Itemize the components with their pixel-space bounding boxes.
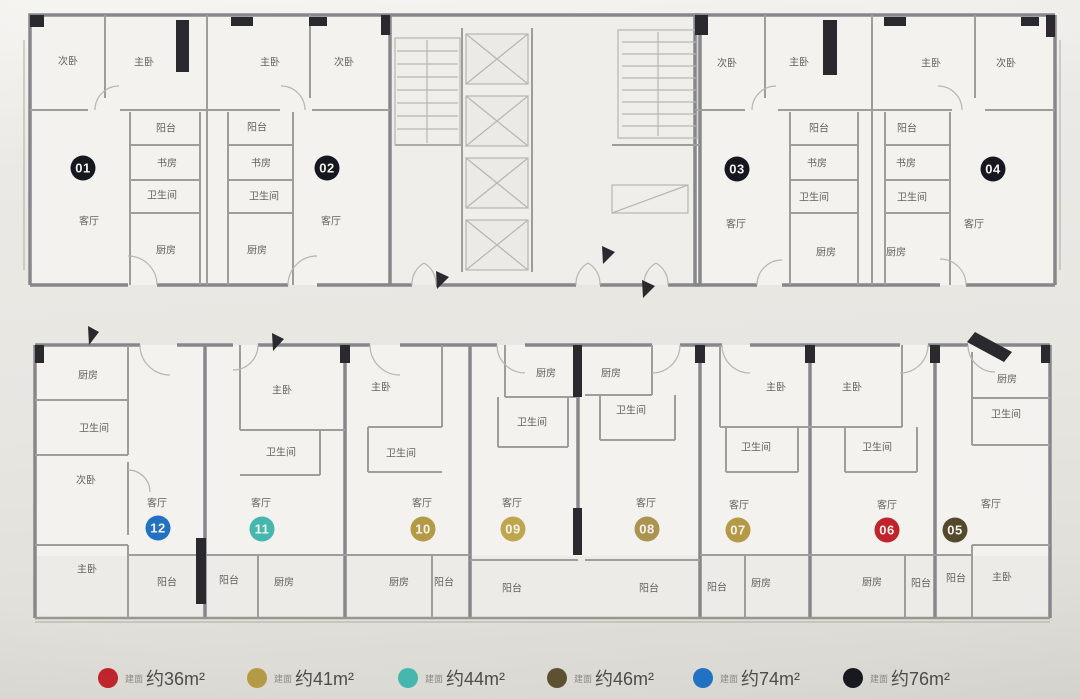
room-label: 客厅 xyxy=(251,495,271,510)
legend-color-dot-icon xyxy=(247,668,267,688)
room-label: 厨房 xyxy=(601,365,621,380)
room-label: 卫生间 xyxy=(616,402,646,417)
room-label: 客厅 xyxy=(321,213,341,228)
room-label: 厨房 xyxy=(751,575,771,590)
room-label: 主卧 xyxy=(789,54,809,69)
legend-area-label: 约36m² xyxy=(146,665,205,691)
legend-color-dot-icon xyxy=(547,668,567,688)
room-label: 卫生间 xyxy=(79,420,109,435)
legend-area-label: 约76m² xyxy=(891,665,950,691)
legend-prefix: 建面 xyxy=(425,672,443,685)
room-label: 客厅 xyxy=(964,216,984,231)
unit-badge-01: 01 xyxy=(71,156,96,181)
room-label: 客厅 xyxy=(981,496,1001,511)
room-label: 厨房 xyxy=(274,574,294,589)
room-label: 卫生间 xyxy=(862,439,892,454)
unit-badge-02: 02 xyxy=(315,156,340,181)
room-label: 阳台 xyxy=(639,580,659,595)
room-label: 客厅 xyxy=(729,497,749,512)
room-label: 厨房 xyxy=(389,574,409,589)
room-label: 厨房 xyxy=(536,365,556,380)
room-label: 厨房 xyxy=(816,244,836,259)
unit-badge-03: 03 xyxy=(725,157,750,182)
room-label: 卫生间 xyxy=(147,187,177,202)
unit-badge-11: 11 xyxy=(250,517,275,542)
room-label: 次卧 xyxy=(76,472,96,487)
room-label: 次卧 xyxy=(58,53,78,68)
room-label: 客厅 xyxy=(636,495,656,510)
legend-prefix: 建面 xyxy=(720,672,738,685)
legend-item: 建面约41m² xyxy=(247,665,354,691)
room-label: 阳台 xyxy=(946,570,966,585)
legend-color-dot-icon xyxy=(398,668,418,688)
legend-item: 建面约74m² xyxy=(693,665,800,691)
block-core xyxy=(390,15,700,285)
room-label: 书房 xyxy=(896,155,916,170)
legend-item: 建面约46m² xyxy=(547,665,654,691)
floorplan-photo: 次卧主卧阳台书房卫生间客厅厨房主卧次卧阳台书房卫生间客厅厨房次卧主卧阳台书房卫生… xyxy=(0,0,1080,699)
room-label: 书房 xyxy=(807,155,827,170)
room-label: 次卧 xyxy=(717,55,737,70)
room-label: 厨房 xyxy=(862,574,882,589)
legend-prefix: 建面 xyxy=(125,672,143,685)
legend-item: 建面约44m² xyxy=(398,665,505,691)
room-label: 阳台 xyxy=(219,572,239,587)
room-label: 卫生间 xyxy=(386,445,416,460)
unit-badge-10: 10 xyxy=(411,517,436,542)
room-label: 卫生间 xyxy=(266,444,296,459)
room-label: 书房 xyxy=(251,155,271,170)
balcony-strip xyxy=(35,556,1050,618)
room-label: 主卧 xyxy=(77,561,97,576)
legend-prefix: 建面 xyxy=(274,672,292,685)
room-label: 厨房 xyxy=(156,242,176,257)
room-label: 阳台 xyxy=(434,574,454,589)
room-label: 客厅 xyxy=(147,495,167,510)
room-label: 卫生间 xyxy=(249,188,279,203)
room-label: 卫生间 xyxy=(517,414,547,429)
legend-area-label: 约46m² xyxy=(595,665,654,691)
unit-badge-06: 06 xyxy=(875,518,900,543)
room-label: 主卧 xyxy=(371,379,391,394)
room-label: 阳台 xyxy=(247,119,267,134)
legend-color-dot-icon xyxy=(693,668,713,688)
room-label: 阳台 xyxy=(502,580,522,595)
room-label: 次卧 xyxy=(334,54,354,69)
legend-color-dot-icon xyxy=(843,668,863,688)
unit-badge-05: 05 xyxy=(943,518,968,543)
room-label: 主卧 xyxy=(260,54,280,69)
floorplan-drawing xyxy=(0,0,1080,699)
room-label: 阳台 xyxy=(911,575,931,590)
room-label: 阳台 xyxy=(156,120,176,135)
unit-badge-09: 09 xyxy=(501,517,526,542)
room-label: 客厅 xyxy=(726,216,746,231)
legend-item: 建面约76m² xyxy=(843,665,950,691)
room-label: 主卧 xyxy=(992,569,1012,584)
room-label: 次卧 xyxy=(996,55,1016,70)
room-label: 主卧 xyxy=(842,379,862,394)
room-label: 客厅 xyxy=(79,213,99,228)
room-label: 书房 xyxy=(157,155,177,170)
room-label: 主卧 xyxy=(921,55,941,70)
room-label: 卫生间 xyxy=(741,439,771,454)
legend-area-label: 约41m² xyxy=(295,665,354,691)
room-label: 主卧 xyxy=(272,382,292,397)
room-label: 主卧 xyxy=(766,379,786,394)
room-label: 厨房 xyxy=(78,367,98,382)
room-label: 客厅 xyxy=(877,497,897,512)
unit-badge-08: 08 xyxy=(635,517,660,542)
room-label: 阳台 xyxy=(157,574,177,589)
legend-prefix: 建面 xyxy=(574,672,592,685)
room-label: 阳台 xyxy=(707,579,727,594)
room-label: 客厅 xyxy=(412,495,432,510)
unit-badge-04: 04 xyxy=(981,157,1006,182)
entry-arrow-icon xyxy=(88,326,99,345)
legend-area-label: 约74m² xyxy=(741,665,800,691)
room-label: 卫生间 xyxy=(799,189,829,204)
legend-item: 建面约36m² xyxy=(98,665,205,691)
room-label: 客厅 xyxy=(502,495,522,510)
room-label: 厨房 xyxy=(247,242,267,257)
unit-badge-07: 07 xyxy=(726,518,751,543)
room-label: 卫生间 xyxy=(991,406,1021,421)
room-label: 厨房 xyxy=(886,244,906,259)
room-label: 阳台 xyxy=(897,120,917,135)
room-label: 主卧 xyxy=(134,54,154,69)
room-label: 阳台 xyxy=(809,120,829,135)
room-label: 厨房 xyxy=(997,371,1017,386)
legend-prefix: 建面 xyxy=(870,672,888,685)
unit-badge-12: 12 xyxy=(146,516,171,541)
legend-area-label: 约44m² xyxy=(446,665,505,691)
legend-color-dot-icon xyxy=(98,668,118,688)
room-label: 卫生间 xyxy=(897,189,927,204)
